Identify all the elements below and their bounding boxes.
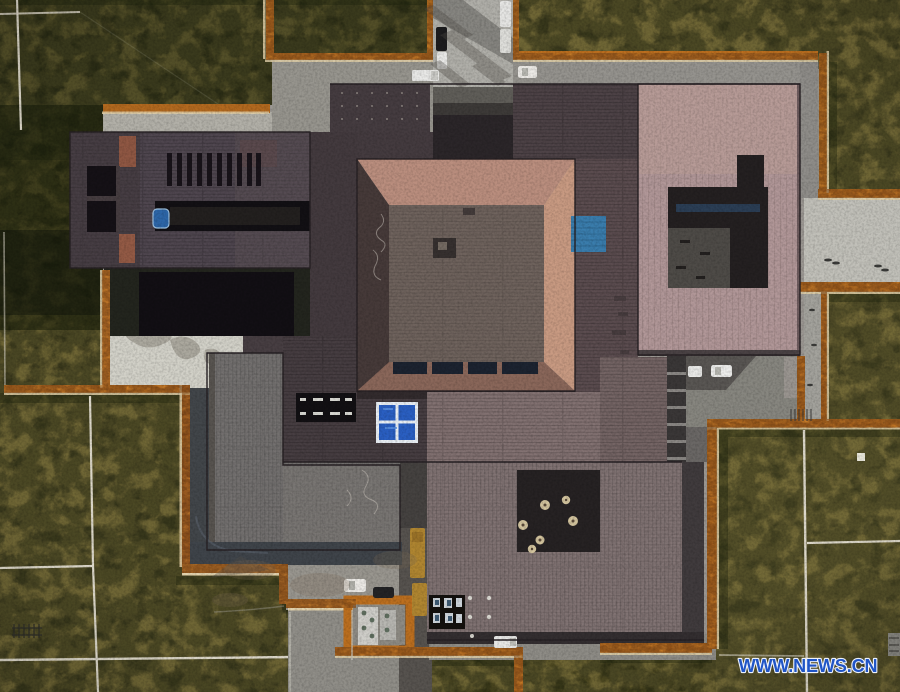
svg-text:WWW.NEWS.CN: WWW.NEWS.CN — [739, 656, 878, 676]
